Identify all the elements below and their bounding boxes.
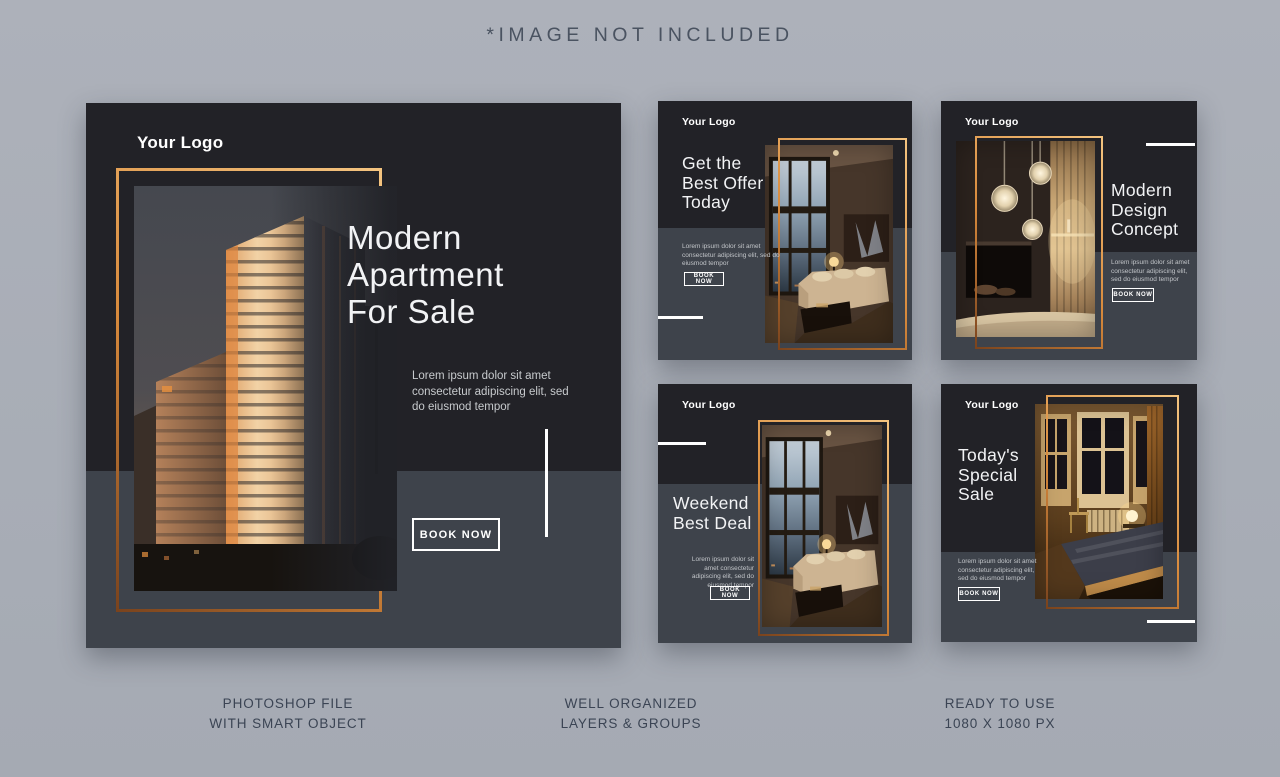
gold-frame	[1046, 395, 1179, 609]
template-showcase: *IMAGE NOT INCLUDED Your Logo Modern Apa…	[0, 0, 1280, 777]
title-line: Modern	[347, 219, 504, 256]
accent-line-horizontal	[658, 442, 706, 445]
post-template-bottom-right: Your Logo Today's Special Sale Lorem ips…	[941, 384, 1197, 642]
book-now-button[interactable]: BOOK NOW	[958, 587, 1000, 601]
book-now-button[interactable]: BOOK NOW	[710, 586, 750, 600]
title-line: Get the	[682, 154, 763, 174]
card-title: Modern Design Concept	[1111, 181, 1178, 240]
brand-logo-text: Your Logo	[965, 399, 1019, 411]
title-line: Weekend	[673, 494, 752, 514]
card-body-text: Lorem ipsum dolor sit amet consectetur a…	[412, 369, 582, 416]
title-line: Concept	[1111, 220, 1178, 240]
feature-caption-size: READY TO USE 1080 X 1080 PX	[860, 694, 1140, 734]
card-title: Today's Special Sale	[958, 446, 1019, 505]
post-template-main: Your Logo Modern Apartment For Sale Lore…	[86, 103, 621, 648]
book-now-button[interactable]: BOOK NOW	[684, 272, 724, 286]
card-body-text: Lorem ipsum dolor sit amet consectetur a…	[678, 556, 754, 590]
accent-line-vertical	[545, 429, 548, 537]
title-line: For Sale	[347, 293, 504, 330]
accent-line-horizontal	[658, 316, 703, 319]
feature-caption-photoshop: PHOTOSHOP FILE WITH SMART OBJECT	[148, 694, 428, 734]
card-title: Modern Apartment For Sale	[347, 219, 504, 330]
caption-line: LAYERS & GROUPS	[491, 714, 771, 734]
title-line: Sale	[958, 485, 1019, 505]
gold-frame	[778, 138, 907, 350]
brand-logo-text: Your Logo	[682, 116, 736, 128]
title-line: Apartment	[347, 256, 504, 293]
card-body-text: Lorem ipsum dolor sit amet consectetur a…	[958, 558, 1043, 584]
caption-line: 1080 X 1080 PX	[860, 714, 1140, 734]
accent-line-horizontal	[1147, 620, 1195, 623]
title-line: Best Deal	[673, 514, 752, 534]
card-title: Get the Best Offer Today	[682, 154, 763, 213]
post-template-top-middle: Your Logo Get the Best Offer Today Lorem…	[658, 101, 912, 360]
card-body-text: Lorem ipsum dolor sit amet consectetur a…	[1111, 259, 1193, 285]
card-title: Weekend Best Deal	[673, 494, 752, 533]
caption-line: WELL ORGANIZED	[491, 694, 771, 714]
title-line: Special	[958, 466, 1019, 486]
caption-line: PHOTOSHOP FILE	[148, 694, 428, 714]
brand-logo-text: Your Logo	[137, 133, 223, 153]
gold-frame	[758, 420, 889, 636]
book-now-button[interactable]: BOOK NOW	[1112, 288, 1154, 302]
disclaimer-text: *IMAGE NOT INCLUDED	[0, 24, 1280, 47]
caption-line: WITH SMART OBJECT	[148, 714, 428, 734]
post-template-bottom-middle: Your Logo Weekend Best Deal Lorem ipsum …	[658, 384, 912, 643]
title-line: Today's	[958, 446, 1019, 466]
feature-caption-layers: WELL ORGANIZED LAYERS & GROUPS	[491, 694, 771, 734]
card-body-text: Lorem ipsum dolor sit amet consectetur a…	[682, 243, 786, 269]
title-line: Design	[1111, 201, 1178, 221]
brand-logo-text: Your Logo	[965, 116, 1019, 128]
title-line: Today	[682, 193, 763, 213]
accent-line-horizontal	[1146, 143, 1195, 146]
gold-frame	[975, 136, 1103, 349]
caption-line: READY TO USE	[860, 694, 1140, 714]
title-line: Modern	[1111, 181, 1178, 201]
book-now-button[interactable]: BOOK NOW	[412, 518, 500, 551]
brand-logo-text: Your Logo	[682, 399, 736, 411]
post-template-top-right: Your Logo Modern Design Concept Lorem ip…	[941, 101, 1197, 360]
title-line: Best Offer	[682, 174, 763, 194]
